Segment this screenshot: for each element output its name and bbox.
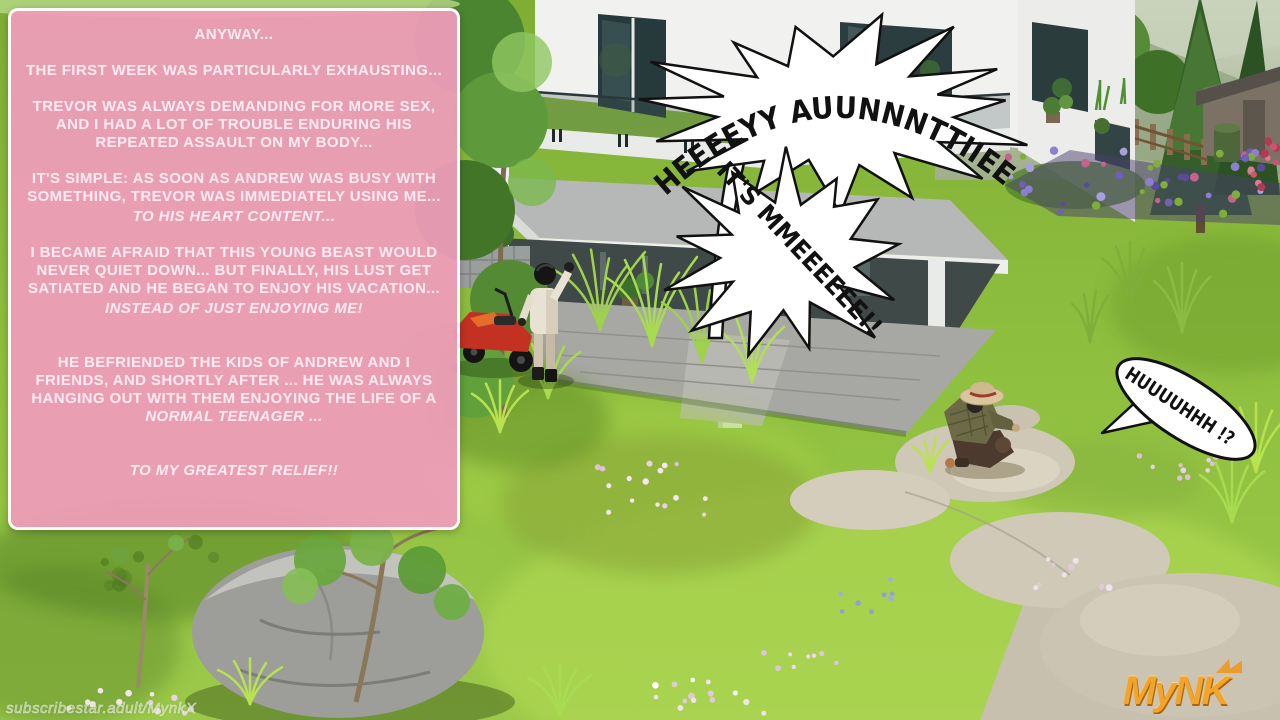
studio-logo-text: MyNK	[1123, 669, 1228, 713]
narration-p5: I BECAME AFRAID THAT THIS YOUNG BEAST WO…	[23, 244, 445, 318]
narration-p5-emphasis: INSTEAD OF JUST ENJOYING ME!	[23, 300, 445, 318]
narration-box: ANYWAY... THE FIRST WEEK WAS PARTICULARL…	[8, 8, 460, 530]
narration-p7: TO MY GREATEST RELIEF!!	[23, 462, 445, 480]
narration-p6-emphasis: NORMAL TEENAGER ...	[145, 408, 322, 425]
watermark: subscribestar.adult/MynkX	[6, 700, 196, 717]
narration-p1: ANYWAY...	[23, 26, 445, 44]
raised-hand	[564, 262, 574, 272]
narration-p6: HE BEFRIENDED THE KIDS OF ANDREW AND I F…	[23, 354, 445, 426]
comic-page: HEEEEYY AUUNNNTTIIEE IT'S MMEEEEEE!! HUU…	[0, 0, 1280, 720]
narration-p3: TREVOR WAS ALWAYS DEMANDING FOR MORE SEX…	[23, 98, 445, 152]
narration-p4-emphasis: TO HIS HEART CONTENT...	[23, 208, 445, 226]
studio-logo: MyNK	[1123, 669, 1228, 714]
narration-p4: IT'S SIMPLE: AS SOON AS ANDREW WAS BUSY …	[23, 170, 445, 226]
narration-p2: THE FIRST WEEK WAS PARTICULARLY EXHAUSTI…	[23, 62, 445, 80]
